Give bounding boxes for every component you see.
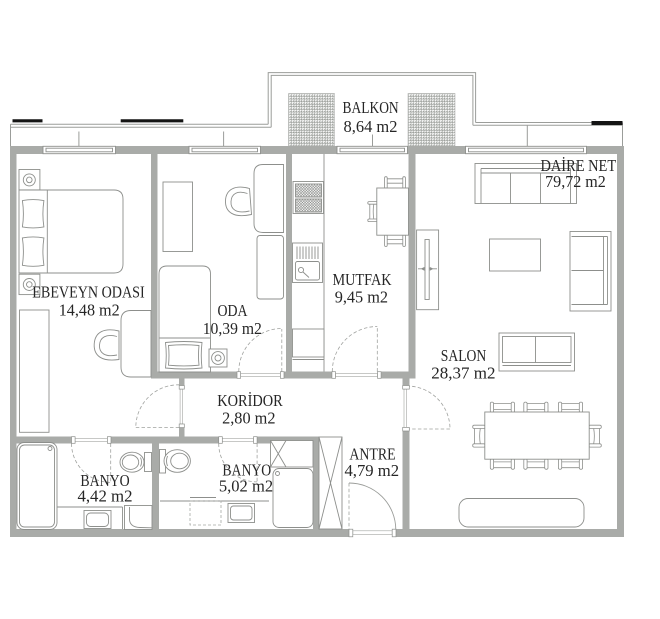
svg-text:5,02 m2: 5,02 m2: [219, 477, 273, 496]
svg-text:EBEVEYN ODASI: EBEVEYN ODASI: [32, 282, 145, 301]
svg-text:ODA: ODA: [218, 301, 249, 320]
svg-text:9,45 m2: 9,45 m2: [335, 288, 388, 307]
svg-text:28,37 m2: 28,37 m2: [431, 364, 495, 383]
svg-text:14,48 m2: 14,48 m2: [59, 301, 120, 320]
svg-text:MUTFAK: MUTFAK: [332, 270, 392, 289]
svg-text:4,79 m2: 4,79 m2: [344, 461, 399, 480]
svg-text:10,39 m2: 10,39 m2: [203, 319, 262, 338]
svg-text:BALKON: BALKON: [343, 98, 399, 117]
svg-text:KORİDOR: KORİDOR: [217, 391, 283, 410]
svg-text:79,72 m2: 79,72 m2: [545, 172, 606, 191]
svg-text:4,42 m2: 4,42 m2: [77, 487, 132, 506]
svg-text:2,80 m2: 2,80 m2: [222, 408, 275, 427]
svg-text:8,64 m2: 8,64 m2: [344, 117, 398, 136]
svg-text:SALON: SALON: [441, 346, 487, 365]
